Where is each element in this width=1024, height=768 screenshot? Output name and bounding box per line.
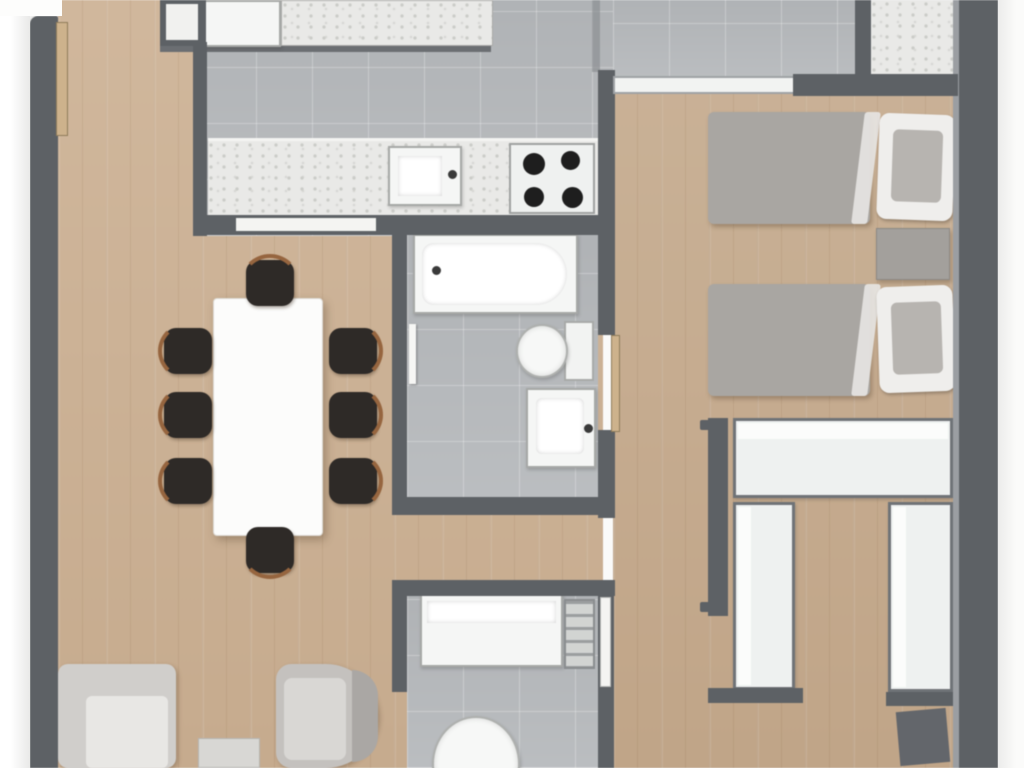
stove <box>509 143 595 214</box>
left-page-margin <box>0 0 30 768</box>
wall-bath2-left <box>392 580 407 692</box>
wall-left-exterior <box>30 16 58 768</box>
wall-closet-left <box>708 418 728 616</box>
dark-door-leaf <box>896 708 951 766</box>
dining-chair <box>164 328 212 374</box>
dining-chair <box>164 392 212 438</box>
sink-faucet <box>448 170 457 179</box>
dining-chair <box>329 392 377 438</box>
bathtub-faucet <box>432 266 441 275</box>
column-panel <box>166 4 198 40</box>
bed-2 <box>708 282 953 396</box>
towel-radiator <box>564 599 595 669</box>
kitchen-upper-counter <box>281 0 493 46</box>
armchair-seat <box>284 678 346 760</box>
floor-balcony-nook <box>871 0 953 78</box>
refrigerator <box>203 0 281 47</box>
vanity-sink <box>526 388 596 468</box>
wardrobe-right-highlight <box>893 507 906 687</box>
floor-plan-canvas <box>0 0 1024 768</box>
armchair <box>276 664 378 768</box>
nightstand <box>876 228 950 280</box>
coffee-table <box>198 738 260 768</box>
dining-chair <box>164 458 212 504</box>
burner <box>524 187 544 207</box>
burner <box>562 187 583 208</box>
door-hinge <box>700 602 710 612</box>
kitchen-sink <box>388 146 462 206</box>
vanity-basin <box>536 398 584 454</box>
towel-bar <box>409 324 416 384</box>
shower-cabinet <box>420 594 563 667</box>
dining-chair <box>246 260 294 306</box>
bathtub-basin <box>422 243 567 305</box>
wall-closet-bottom-stub <box>708 688 803 703</box>
bed-1-pillow-core <box>891 129 943 203</box>
wall-bath2-top <box>392 580 615 596</box>
shower-cabinet-top <box>427 601 556 623</box>
floor-plan <box>0 0 1024 768</box>
dining-chair <box>329 328 377 374</box>
kitchen-pass-opening <box>236 218 376 231</box>
wall-corridor-balcony-divider <box>855 0 871 78</box>
bed-2-pillow <box>876 285 956 394</box>
bathroom-door-leaf <box>611 335 620 432</box>
armchair-back <box>352 670 378 762</box>
bed-1 <box>708 110 953 224</box>
bathtub <box>413 234 578 314</box>
right-page-margin <box>998 0 1024 768</box>
wardrobe-top <box>733 418 953 498</box>
wall-bath1-bottom <box>392 497 615 515</box>
wall-bath1-left <box>392 215 407 515</box>
entrance-door-leaf <box>56 22 68 136</box>
dining-chair <box>329 458 377 504</box>
floor-corridor <box>613 0 855 80</box>
wall-closet-right-stub <box>886 692 953 706</box>
sofa-seat <box>86 696 168 768</box>
wall-center-upper <box>598 70 615 335</box>
dining-chair <box>246 527 294 573</box>
bed-2-pillow-core <box>891 301 943 375</box>
dining-table <box>213 298 323 536</box>
wardrobe-left <box>733 502 795 690</box>
bed-2-mattress <box>708 284 870 396</box>
vanity-faucet <box>584 424 593 433</box>
toilet-tank <box>564 321 594 381</box>
top-left-corner-margin <box>0 0 62 16</box>
wardrobe-left-highlight <box>738 507 751 685</box>
wall-seam-kitchen-corridor <box>592 0 600 72</box>
wall-bedroom-top <box>793 74 958 96</box>
burner <box>561 151 580 170</box>
wall-right-exterior <box>953 0 998 768</box>
bathroom2-door-leaf <box>600 597 611 687</box>
sofa <box>58 664 176 768</box>
bedroom-window-band <box>613 76 795 94</box>
wardrobe-right <box>888 502 953 692</box>
burner <box>523 153 545 175</box>
bed-1-mattress <box>708 112 870 224</box>
wardrobe-top-highlight <box>738 423 948 439</box>
bed-1-pillow <box>876 113 956 222</box>
sink-basin <box>398 156 442 196</box>
wall-kitchen-stub <box>193 42 207 236</box>
toilet-bowl <box>516 324 568 378</box>
door-hinge <box>700 420 710 430</box>
